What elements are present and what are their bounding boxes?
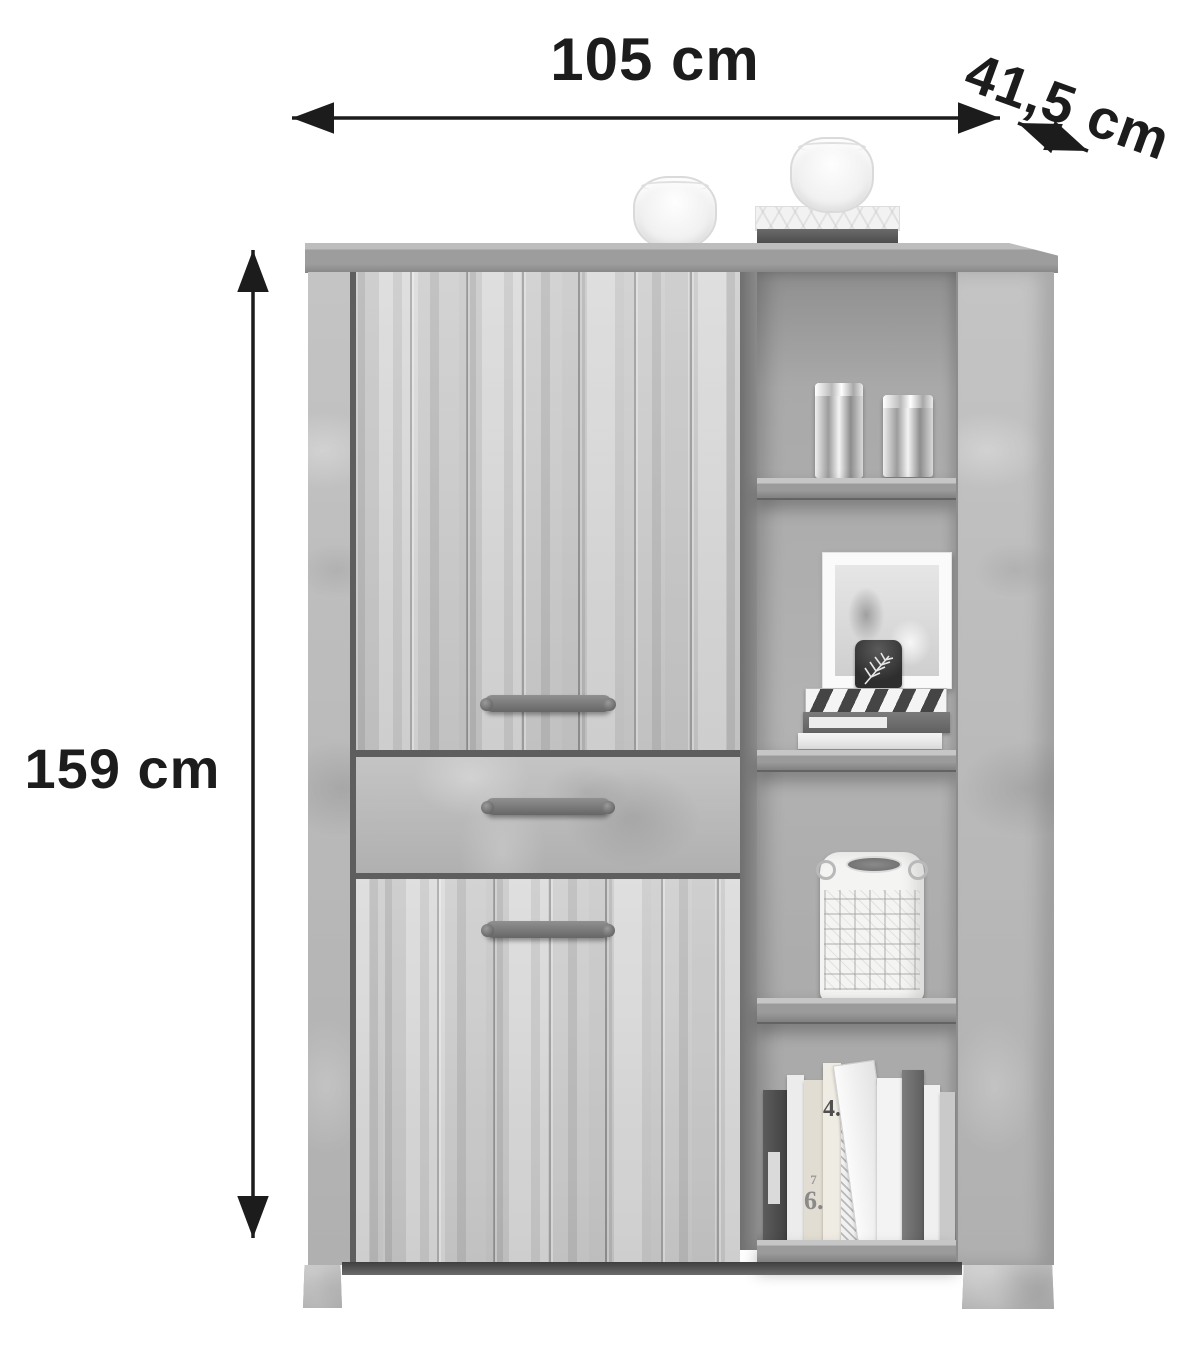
cabinet-right-side-panel	[956, 272, 1054, 1265]
shelf-book-8	[902, 1070, 924, 1240]
lantern-opening	[846, 856, 902, 873]
white-book	[798, 733, 942, 749]
glass-votive-right	[790, 137, 874, 213]
shelf-book-1-label	[768, 1152, 780, 1204]
shelf-book-10	[940, 1092, 955, 1240]
red-book-label	[809, 717, 887, 728]
open-shelf-divider	[740, 272, 757, 1250]
shelf-book-2	[787, 1075, 804, 1240]
cabinet-drawer	[356, 757, 740, 873]
shelf-book-7	[877, 1078, 902, 1240]
shelf-board-2	[757, 750, 956, 772]
silver-vase-large	[815, 383, 863, 478]
shelf-book-1	[763, 1090, 787, 1240]
lantern-handle-left	[816, 860, 836, 880]
upper-panel-gap	[356, 750, 740, 757]
left-frame-gap	[350, 272, 356, 1262]
striped-book	[805, 688, 947, 714]
fern-leaf-motif	[855, 640, 902, 688]
lower-door-handle	[485, 921, 611, 938]
lantern-handle-right	[908, 860, 928, 880]
shelf-book-9	[924, 1085, 940, 1240]
silver-vase-small	[883, 395, 933, 477]
cabinet-left-frame	[308, 272, 356, 1265]
cabinet-top-panel	[305, 243, 1058, 273]
shelf-board-3	[757, 998, 956, 1024]
book-digit-six: 6.	[804, 1186, 823, 1216]
shelf-board-1	[757, 478, 956, 500]
plinth-shadow	[342, 1262, 962, 1275]
red-book	[803, 712, 950, 733]
glass-votive-left	[633, 176, 717, 250]
shelf-board-4	[757, 1240, 956, 1264]
cabinet-lower-door	[356, 879, 740, 1262]
upper-door-handle	[484, 695, 612, 712]
cabinet-right-leg	[962, 1265, 1054, 1309]
moroccan-lantern	[820, 852, 924, 1002]
shelf-book-3: 7 6.	[804, 1080, 823, 1240]
product-dimension-diagram: 105 cm 41,5 cm 159 cm	[0, 0, 1200, 1357]
lantern-pattern	[824, 890, 920, 990]
cabinet-upper-door	[356, 272, 740, 750]
cabinet-photo: 7 6. 4.	[0, 0, 1200, 1357]
drawer-handle	[485, 798, 611, 815]
black-candle-holder	[855, 640, 902, 688]
cabinet-left-leg	[303, 1265, 342, 1308]
